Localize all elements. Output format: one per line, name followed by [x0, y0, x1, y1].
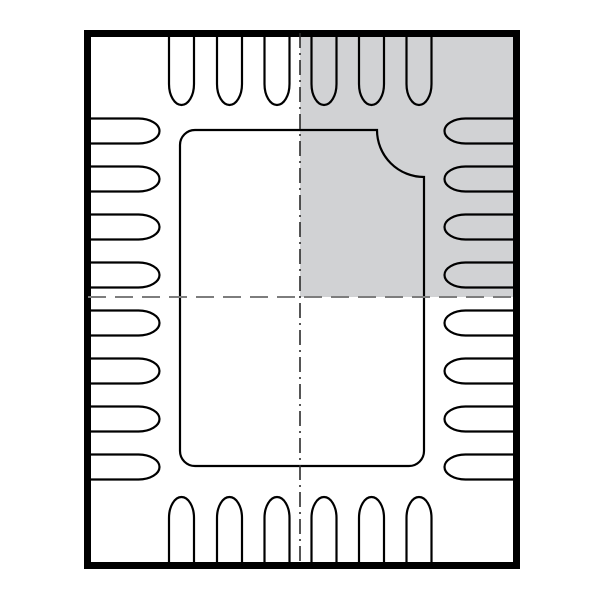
package-diagram — [0, 0, 600, 600]
ic-package-drawing — [0, 0, 600, 600]
